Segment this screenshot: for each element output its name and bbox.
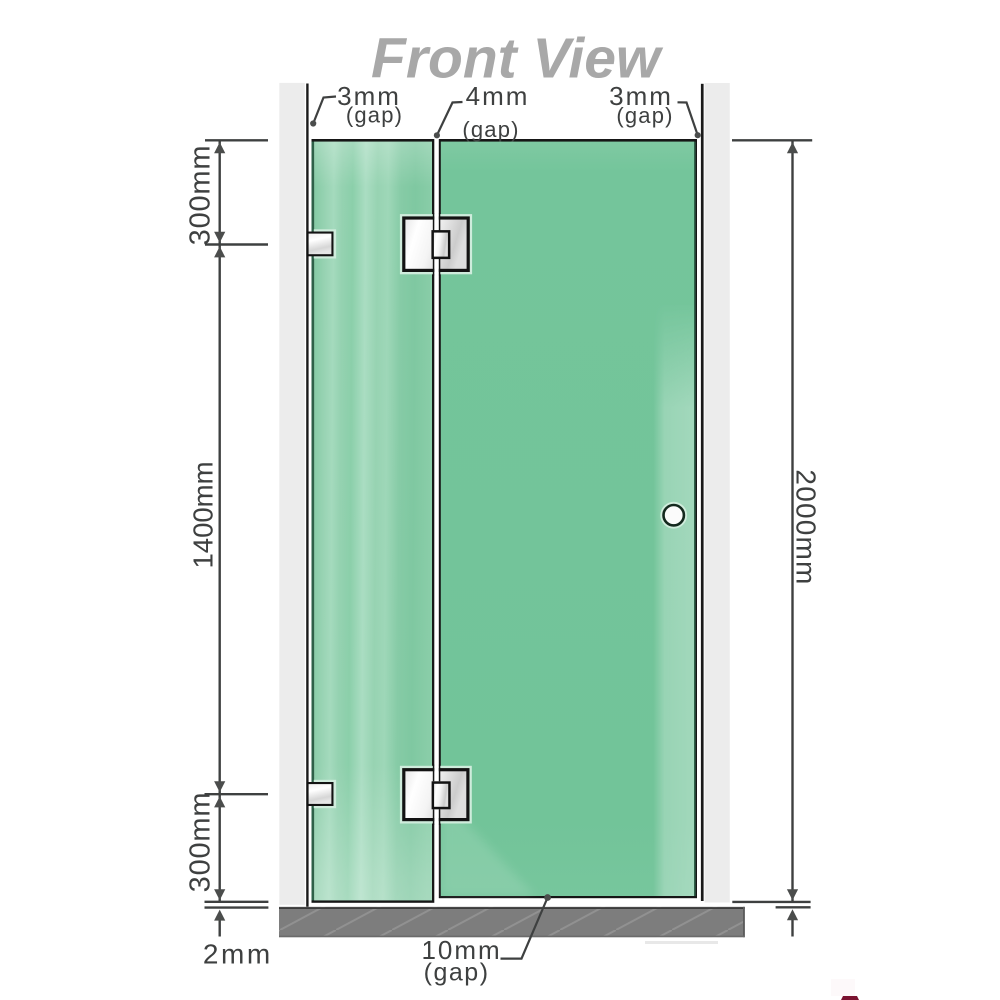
svg-text:300mm: 300mm bbox=[185, 145, 217, 246]
svg-text:2000mm: 2000mm bbox=[791, 469, 822, 585]
svg-text:(gap): (gap) bbox=[462, 117, 519, 142]
svg-text:(gap): (gap) bbox=[346, 103, 403, 128]
svg-text:(gap): (gap) bbox=[616, 103, 673, 128]
svg-text:(gap): (gap) bbox=[424, 959, 490, 987]
svg-text:1400mm: 1400mm bbox=[188, 462, 219, 569]
svg-text:4mm: 4mm bbox=[466, 81, 530, 111]
svg-text:2mm: 2mm bbox=[203, 939, 273, 970]
svg-text:300mm: 300mm bbox=[185, 792, 217, 893]
